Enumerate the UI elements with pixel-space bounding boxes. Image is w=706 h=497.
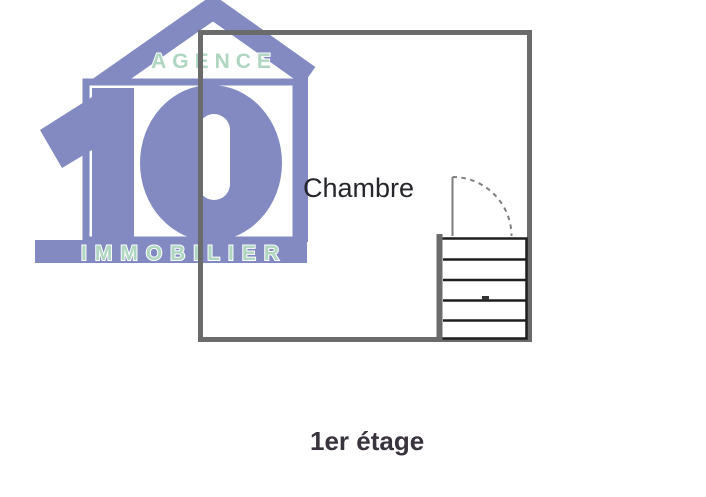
- logo-text-agence: AGENCE: [151, 50, 277, 73]
- stair-direction-mark: [482, 296, 489, 300]
- logo-right-wall-band: [294, 70, 308, 242]
- stair-outline: [441, 239, 527, 339]
- staircase: [440, 234, 527, 341]
- door: [453, 177, 512, 236]
- floor-caption: 1er étage: [310, 426, 424, 456]
- logo-text-immobilier: IMMOBILIER: [81, 242, 287, 265]
- logo-number-10: [40, 85, 282, 241]
- room-label-chambre: Chambre: [303, 173, 414, 203]
- floor-plan-svg: AGENCE IMMOBILIER: [0, 0, 706, 497]
- floor-plan-image: AGENCE IMMOBILIER: [0, 0, 706, 497]
- door-swing-arc: [453, 177, 512, 236]
- agence-10-logo: AGENCE IMMOBILIER: [35, 8, 309, 265]
